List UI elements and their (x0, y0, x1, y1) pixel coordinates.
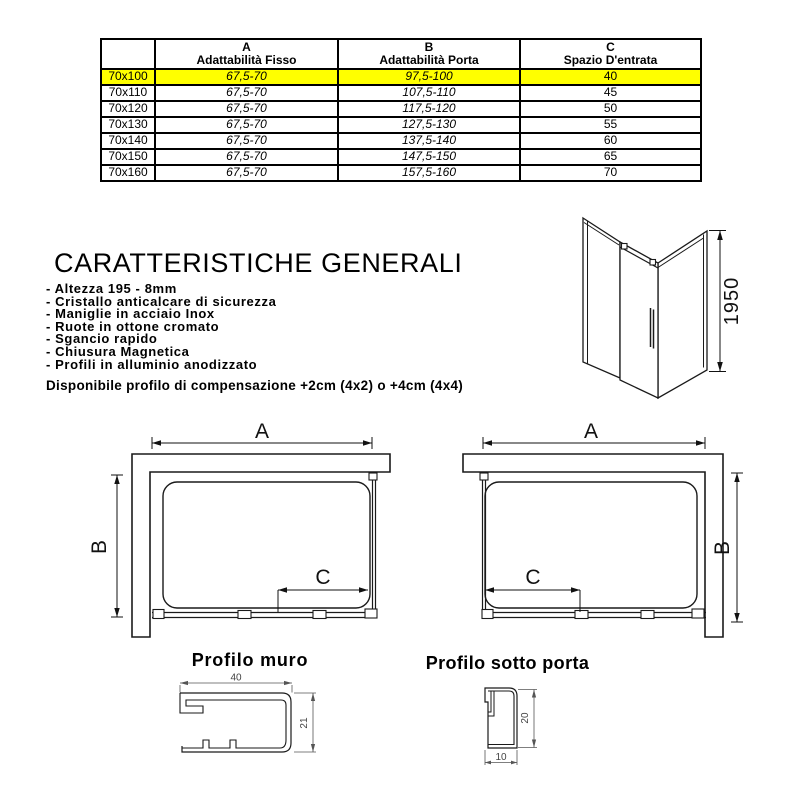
corner-cell (101, 39, 155, 69)
dimension-a: A (483, 420, 705, 449)
under-door-profile-title: Profilo sotto porta (420, 653, 595, 674)
spazio-cell: 65 (520, 149, 701, 165)
table-row: 70x120 67,5-70 117,5-120 50 (101, 101, 701, 117)
size-table-section: A Adattabilità Fisso B Adattabilità Port… (100, 38, 702, 182)
spazio-cell: 40 (520, 69, 701, 85)
header-col-a: A Adattabilità Fisso (155, 39, 338, 69)
fisso-cell: 67,5-70 (155, 85, 338, 101)
header-letter-c: C (521, 41, 700, 54)
table-header-row: A Adattabilità Fisso B Adattabilità Port… (101, 39, 701, 69)
under-door-profile-drawing: 20 10 (465, 672, 565, 777)
size-cell: 70x120 (101, 101, 155, 117)
header-label-a: Adattabilità Fisso (156, 54, 337, 67)
plan-view-right: A B C (425, 420, 755, 665)
spazio-cell: 55 (520, 117, 701, 133)
profile-cross-section (485, 688, 517, 748)
fisso-cell: 67,5-70 (155, 149, 338, 165)
spazio-cell: 45 (520, 85, 701, 101)
roller-left (622, 244, 628, 250)
plan-view-left: A B C (75, 420, 405, 665)
shower-tray (163, 482, 370, 608)
feature-item: - Profili in alluminio anodizzato (46, 359, 276, 372)
table-row: 70x160 67,5-70 157,5-160 70 (101, 165, 701, 181)
door-rail (482, 609, 706, 619)
side-glass-panel (658, 231, 707, 398)
table-row: 70x140 67,5-70 137,5-140 60 (101, 133, 701, 149)
size-cell: 70x160 (101, 165, 155, 181)
dimension-a: A (152, 420, 372, 449)
datasheet-page: { "size_table": { "corner": "", "col_a":… (0, 0, 800, 800)
profile-cross-section (180, 693, 291, 752)
dimension-c-label: C (315, 566, 330, 589)
width-dimension-label: 10 (495, 752, 507, 763)
dimension-b-label: B (711, 541, 734, 555)
width-dimension-label: 40 (230, 673, 242, 684)
spazio-cell: 60 (520, 133, 701, 149)
height-dimension-label: 1950 (721, 277, 743, 326)
height-dimension: 20 (518, 690, 537, 748)
porta-cell: 107,5-110 (338, 85, 520, 101)
header-label-b: Adattabilità Porta (339, 54, 519, 67)
fixed-glass-panel (583, 218, 620, 378)
fisso-cell: 67,5-70 (155, 133, 338, 149)
dimension-b: B (88, 475, 123, 617)
shower-tray (485, 482, 697, 608)
dimension-a-label: A (255, 420, 269, 443)
size-cell: 70x140 (101, 133, 155, 149)
table-row: 70x150 67,5-70 147,5-150 65 (101, 149, 701, 165)
compensation-note: Disponibile profilo di compensazione +2c… (46, 378, 463, 393)
porta-cell: 127,5-130 (338, 117, 520, 133)
table-row: 70x130 67,5-70 127,5-130 55 (101, 117, 701, 133)
size-cell: 70x150 (101, 149, 155, 165)
width-dimension: 10 (485, 750, 517, 765)
header-col-b: B Adattabilità Porta (338, 39, 520, 69)
height-dimension: 21 (294, 693, 316, 752)
porta-cell: 97,5-100 (338, 69, 520, 85)
header-label-c: Spazio D'entrata (521, 54, 700, 67)
size-cell: 70x130 (101, 117, 155, 133)
door-rail (152, 609, 377, 619)
dimension-a-label: A (584, 420, 598, 443)
header-letter-b: B (339, 41, 519, 54)
isometric-shower-drawing: 1950 (550, 205, 800, 415)
size-cell: 70x100 (101, 69, 155, 85)
dimension-b-label: B (88, 540, 111, 554)
height-dimension-label: 20 (520, 712, 531, 724)
header-letter-a: A (156, 41, 337, 54)
size-table: A Adattabilità Fisso B Adattabilità Port… (100, 38, 702, 182)
porta-cell: 117,5-120 (338, 101, 520, 117)
table-row: 70x110 67,5-70 107,5-110 45 (101, 85, 701, 101)
height-dimension-label: 21 (299, 717, 310, 729)
fisso-cell: 67,5-70 (155, 69, 338, 85)
width-dimension: 40 (180, 673, 292, 693)
table-row-highlighted: 70x100 67,5-70 97,5-100 40 (101, 69, 701, 85)
sliding-door-panel (620, 242, 658, 398)
wall-profile-title: Profilo muro (170, 650, 330, 671)
spazio-cell: 70 (520, 165, 701, 181)
fisso-cell: 67,5-70 (155, 117, 338, 133)
dimension-c-label: C (525, 566, 540, 589)
spazio-cell: 50 (520, 101, 701, 117)
header-col-c: C Spazio D'entrata (520, 39, 701, 69)
height-dimension: 1950 (709, 231, 743, 372)
section-title: CARATTERISTICHE GENERALI (54, 248, 462, 279)
fisso-cell: 67,5-70 (155, 165, 338, 181)
feature-list: - Altezza 195 - 8mm - Cristallo anticalc… (46, 283, 276, 371)
porta-cell: 137,5-140 (338, 133, 520, 149)
porta-cell: 147,5-150 (338, 149, 520, 165)
porta-cell: 157,5-160 (338, 165, 520, 181)
roller-right (650, 260, 656, 266)
size-cell: 70x110 (101, 85, 155, 101)
wall-profile-drawing: 40 21 (170, 672, 335, 762)
fisso-cell: 67,5-70 (155, 101, 338, 117)
